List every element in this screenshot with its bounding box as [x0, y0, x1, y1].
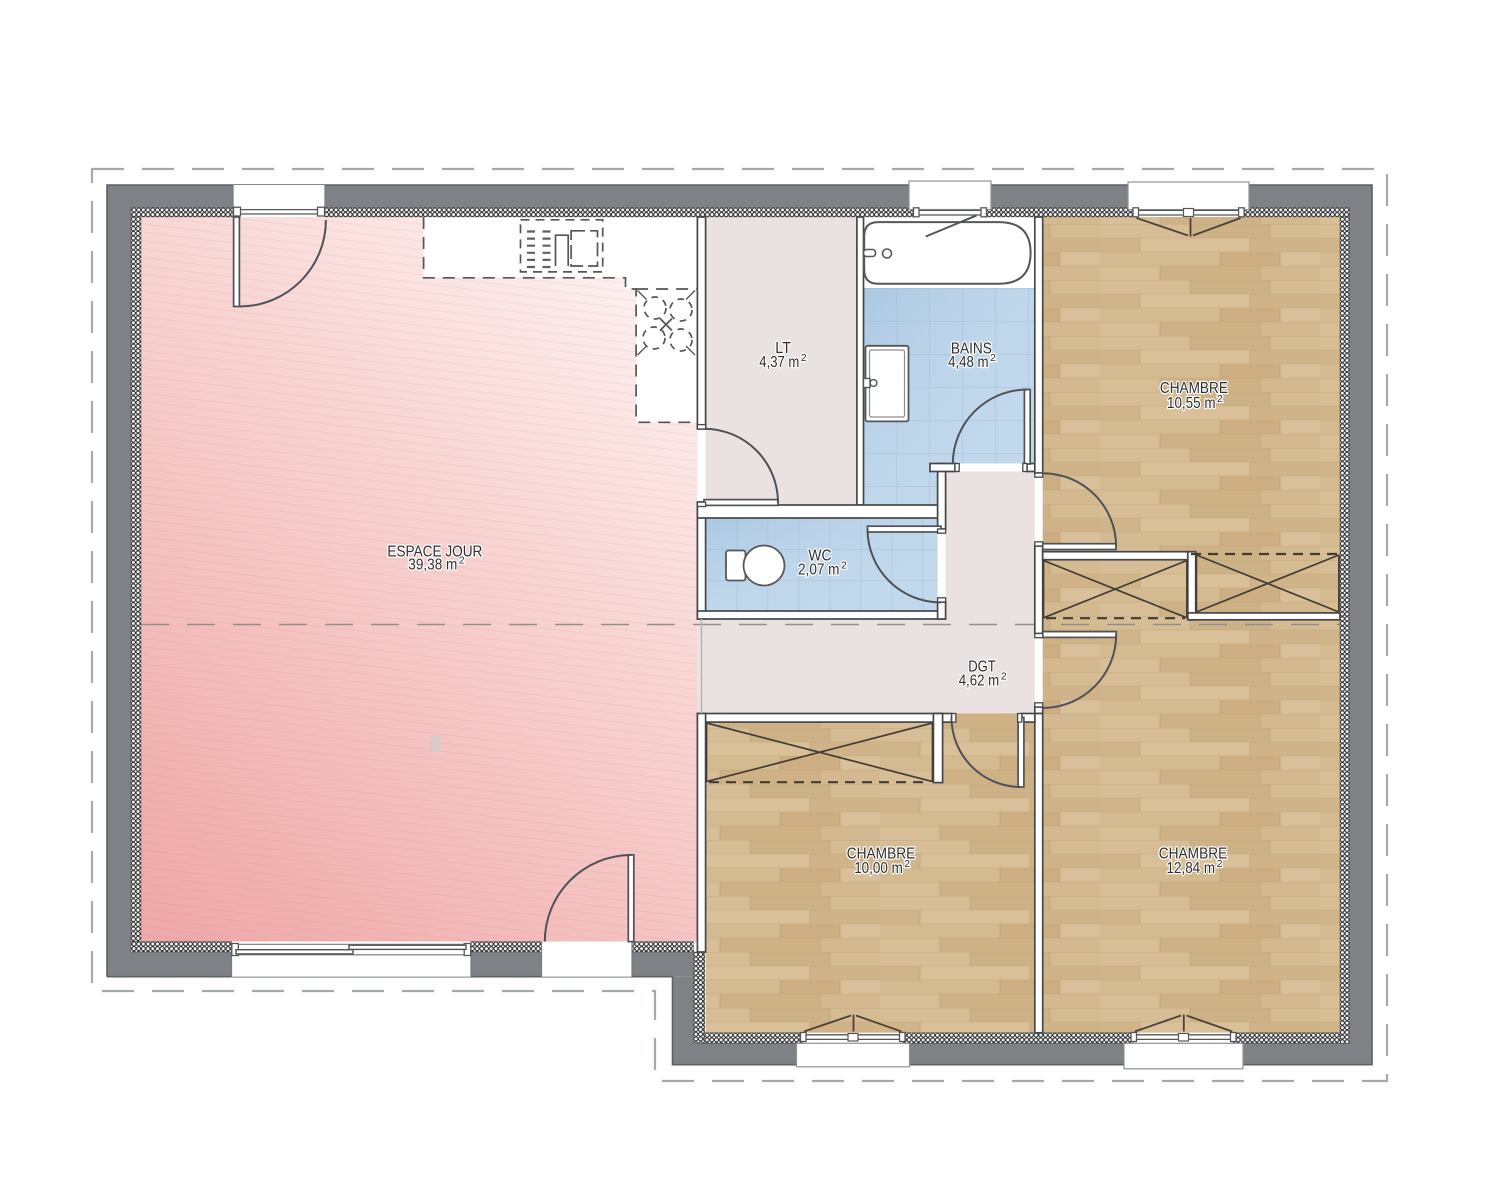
svg-text:2: 2: [1217, 858, 1223, 870]
svg-text:10,55 m: 10,55 m: [1167, 395, 1216, 412]
svg-text:4,48 m: 4,48 m: [948, 354, 989, 371]
svg-text:2: 2: [841, 560, 847, 572]
svg-text:4,62 m: 4,62 m: [959, 673, 1000, 690]
svg-text:2: 2: [801, 352, 807, 364]
svg-text:2: 2: [990, 352, 996, 364]
svg-text:2: 2: [904, 858, 910, 870]
svg-text:39,38 m: 39,38 m: [408, 557, 457, 574]
svg-text:2,07 m: 2,07 m: [798, 562, 840, 579]
svg-text:2: 2: [459, 555, 465, 567]
svg-text:10,00 m: 10,00 m: [854, 860, 903, 877]
svg-text:2: 2: [1001, 671, 1007, 683]
svg-text:12,84 m: 12,84 m: [1167, 860, 1216, 877]
svg-text:2: 2: [1217, 393, 1223, 405]
svg-text:4,37 m: 4,37 m: [759, 354, 799, 371]
